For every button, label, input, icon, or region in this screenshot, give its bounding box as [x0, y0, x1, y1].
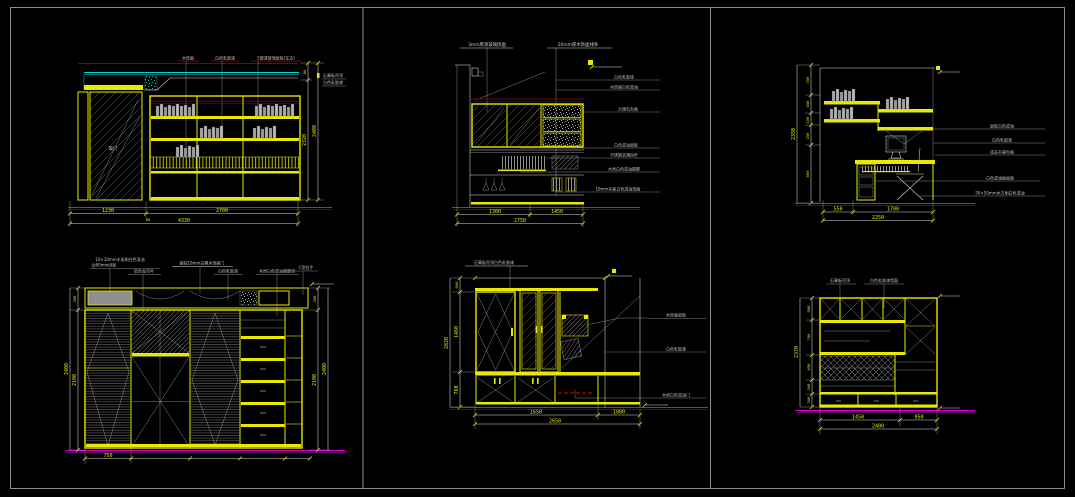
annotation: 白色乳胶漆 [614, 74, 634, 80]
elevation-desk: 2350 350 450 100 250 800 [791, 63, 1045, 223]
cad-viewport: 木饰面 白色乳胶漆 5厘清玻璃层板(车边) 玻门 [0, 0, 1075, 497]
dim-label: 2370 [794, 346, 800, 358]
dim-label: 250 [805, 132, 810, 140]
annotation: 白色乳胶漆墙面 [870, 277, 898, 283]
cad-canvas: 木饰面 白色乳胶漆 5厘清玻璃层板(车边) 玻门 [0, 0, 1075, 497]
dim-label: 340 [806, 383, 811, 391]
annotation: 面贴18mm白橡木饰面门 [180, 260, 225, 266]
annotation: 白色混油层板 [614, 142, 638, 148]
dim-label: 450 [806, 363, 811, 371]
annotation: 白色混油抽屉面 [986, 175, 1014, 181]
annotation: 50×50mm木方刷白色混油 [975, 190, 1024, 196]
dim-label: 300 [312, 295, 317, 303]
dim-label: 2400 [312, 125, 318, 137]
annotation: 3mm厚清玻璃饰面 [468, 41, 506, 48]
annotation: 木质白色混油踢脚线 [259, 268, 295, 274]
annotation: 白色乳胶漆 [666, 346, 686, 352]
annotation: 木质白色混油踢脚 [608, 166, 640, 172]
annotation: 5厘清玻璃层板(车边) [257, 55, 295, 61]
annotation: 石膏板吊顶 [830, 277, 850, 283]
dim-label: 4330 [178, 218, 190, 224]
dim-label: 2100 [72, 374, 78, 386]
dim-label: 1000 [613, 410, 625, 416]
dim-label: 1460 [454, 326, 460, 338]
dim-label: 2700 [216, 208, 228, 214]
dim-label: 1450 [852, 415, 864, 421]
dim-label: 1700 [887, 207, 899, 213]
dim-label: 300 [72, 295, 77, 303]
dim-label: 80 [302, 69, 307, 74]
annotation: 石膏板吊顶白色乳胶漆 [474, 259, 514, 265]
dim-label: 2350 [791, 128, 797, 140]
annotation: 成品书桌台面 [990, 149, 1014, 155]
elevation-cabinet-3: 石膏板吊顶 白色乳胶漆墙面 580 700 450 340 300 2370 [794, 277, 975, 434]
annotation: 18mm夹板白色混油饰面 [596, 186, 641, 192]
annotation: 木饰面层板 [666, 312, 686, 318]
elevation-cabinet-wall: 3mm厚清玻璃饰面 20mm厚木饰面线条 [452, 41, 660, 227]
dim-label: 600 [454, 281, 459, 289]
annotation: 木质白色混油门 [662, 392, 690, 398]
door-label: 玻门 [109, 145, 118, 152]
dim-label: 2750 [514, 218, 526, 224]
dim-label: 2250 [872, 215, 884, 221]
annotation: 木饰面 [182, 55, 194, 61]
dim-label: 950 [914, 415, 923, 421]
dim-label: 580 [806, 305, 811, 313]
annotation: 10×30mm木条刷白色混油 [95, 256, 144, 262]
annotation: 白色乳胶漆 [323, 79, 343, 85]
annotation: @60mm间距 [92, 262, 117, 268]
elevation-cabinet-2: 石膏板吊顶白色乳胶漆 600 1460 760 2820 [444, 259, 708, 429]
dim-label: 2820 [444, 337, 450, 349]
annotation: 石膏板吊顶 [323, 72, 343, 78]
elevation-bookshelf: 木饰面 白色乳胶漆 5厘清玻璃层板(车边) 玻门 [68, 55, 346, 228]
dim-label: 1650 [530, 410, 542, 416]
annotation: 木饰面白色混油 [610, 84, 638, 90]
annotation: 铝合金百叶 [134, 268, 154, 274]
dim-label: 450 [805, 100, 810, 108]
dim-label: 2400 [322, 363, 328, 375]
dim-label: 760 [454, 385, 460, 394]
dim-label: 750 [103, 453, 112, 459]
dim-label: 800 [805, 170, 810, 178]
dim-label: 2100 [312, 374, 318, 386]
dim-label: 100 [805, 116, 810, 124]
dim-label: 1230 [102, 208, 114, 214]
dim-label: 1300 [489, 209, 501, 215]
dim-label: 80 [146, 217, 151, 222]
dim-label: 2320 [302, 134, 308, 146]
elevation-wardrobe: 10×30mm木条刷白色混油 @60mm间距 铝合金百叶 面贴18mm白橡木饰面… [64, 256, 345, 464]
annotation: 白色乳胶漆 [218, 268, 238, 274]
annotation: 白色乳胶漆 [992, 137, 1012, 143]
dim-label: 550 [833, 207, 842, 213]
dim-label: 350 [805, 76, 810, 84]
annotation: 20mm厚木饰面线条 [558, 41, 599, 48]
annotation: 白色乳胶漆 [215, 55, 235, 61]
dim-label: 2400 [872, 424, 884, 430]
dim-label: 700 [806, 333, 811, 341]
annotation: 不锈钢衣通吊杆 [610, 152, 638, 158]
dim-label: 2650 [549, 419, 561, 425]
dim-label: 1450 [551, 209, 563, 215]
dim-label: 300 [806, 396, 811, 404]
annotation: 层板白色混油 [990, 123, 1014, 129]
annotation: 大理石台面 [618, 106, 638, 112]
dim-label: 2400 [64, 363, 70, 375]
annotation: C型拉手 [299, 264, 314, 270]
